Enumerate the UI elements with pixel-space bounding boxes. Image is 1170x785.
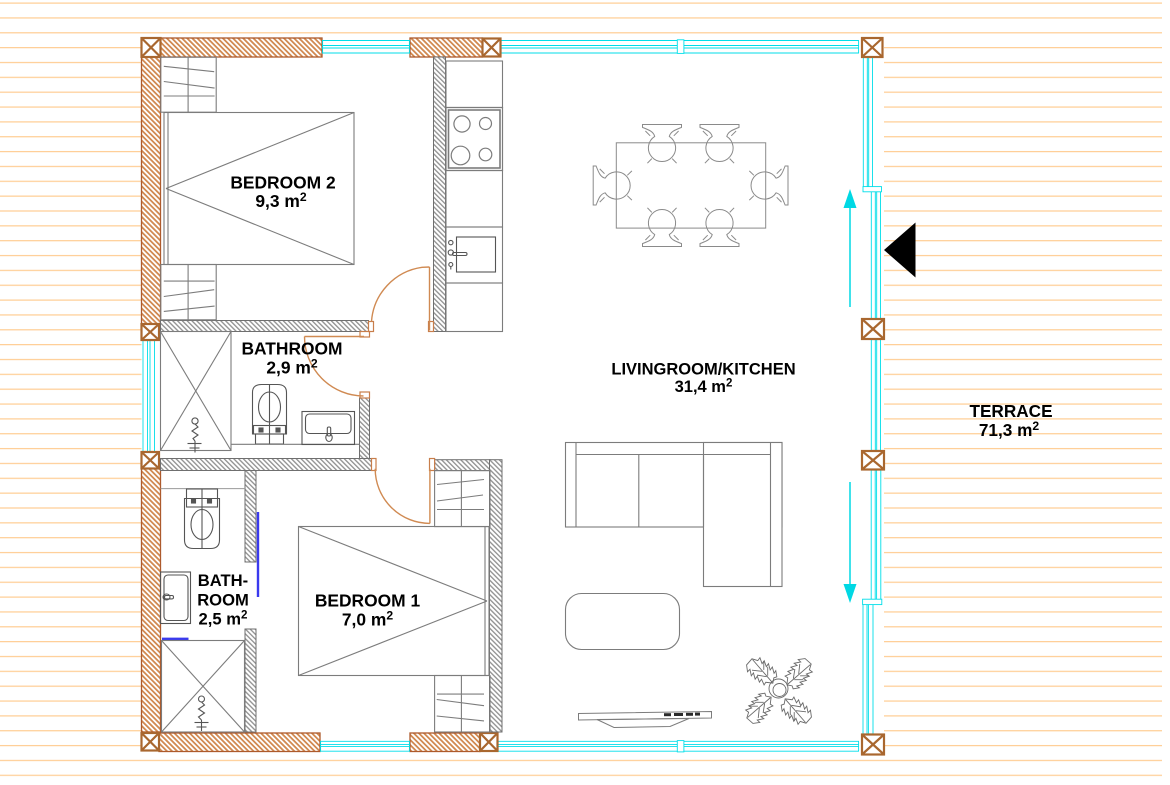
svg-text:BATHROOM: BATHROOM [241,339,342,359]
svg-text:31,4 m2: 31,4 m2 [675,378,733,397]
svg-text:2,5 m2: 2,5 m2 [199,609,248,629]
svg-text:BEDROOM 1: BEDROOM 1 [315,591,421,611]
svg-text:BATH-: BATH- [198,571,248,590]
svg-text:2,9 m2: 2,9 m2 [266,357,317,378]
svg-text:9,3 m2: 9,3 m2 [255,190,306,211]
svg-text:ROOM: ROOM [197,591,249,610]
svg-text:BEDROOM 2: BEDROOM 2 [230,173,335,193]
svg-text:7,0 m2: 7,0 m2 [342,609,393,630]
svg-text:71,3 m2: 71,3 m2 [979,419,1040,440]
svg-text:LIVINGROOM/KITCHEN: LIVINGROOM/KITCHEN [611,361,795,379]
svg-text:TERRACE: TERRACE [969,401,1052,421]
